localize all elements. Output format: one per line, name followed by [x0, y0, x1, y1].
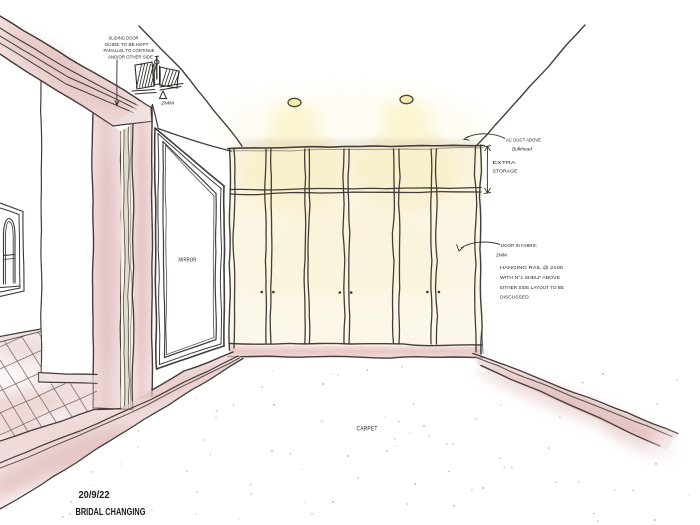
svg-text:GUIDE TO BE KEPT: GUIDE TO BE KEPT [105, 42, 149, 48]
svg-text:WITH N°1 SHELF ABOVE: WITH N°1 SHELF ABOVE [500, 275, 560, 281]
svg-text:BRIDAL CHANGING: BRIDAL CHANGING [76, 507, 146, 518]
svg-text:MIRROR: MIRROR [179, 258, 197, 264]
svg-text:DISCUSSED.: DISCUSSED. [500, 295, 530, 301]
svg-text:AND/OR OTHER SIDE: AND/OR OTHER SIDE [108, 54, 153, 60]
svg-text:EITHER SIDE LAYOUT TO BE: EITHER SIDE LAYOUT TO BE [500, 285, 564, 291]
svg-text:DOOR IN FABRIC: DOOR IN FABRIC [501, 243, 537, 249]
svg-text:PARALLEL TO CONTINUE: PARALLEL TO CONTINUE [104, 48, 155, 54]
svg-text:HANGING RAIL @ 2100: HANGING RAIL @ 2100 [500, 265, 563, 271]
svg-text:2MM: 2MM [496, 253, 507, 259]
svg-text:STORAGE: STORAGE [493, 169, 518, 175]
svg-text:CARPET: CARPET [357, 427, 378, 433]
svg-text:AC DUCT ABOVE: AC DUCT ABOVE [506, 138, 541, 144]
svg-text:20/9/22: 20/9/22 [79, 489, 110, 501]
svg-text:SLIDING DOOR: SLIDING DOOR [109, 36, 139, 42]
svg-text:2MM: 2MM [161, 101, 174, 107]
svg-text:Bulkhead: Bulkhead [512, 147, 532, 153]
svg-text:EXTRA: EXTRA [493, 160, 517, 166]
